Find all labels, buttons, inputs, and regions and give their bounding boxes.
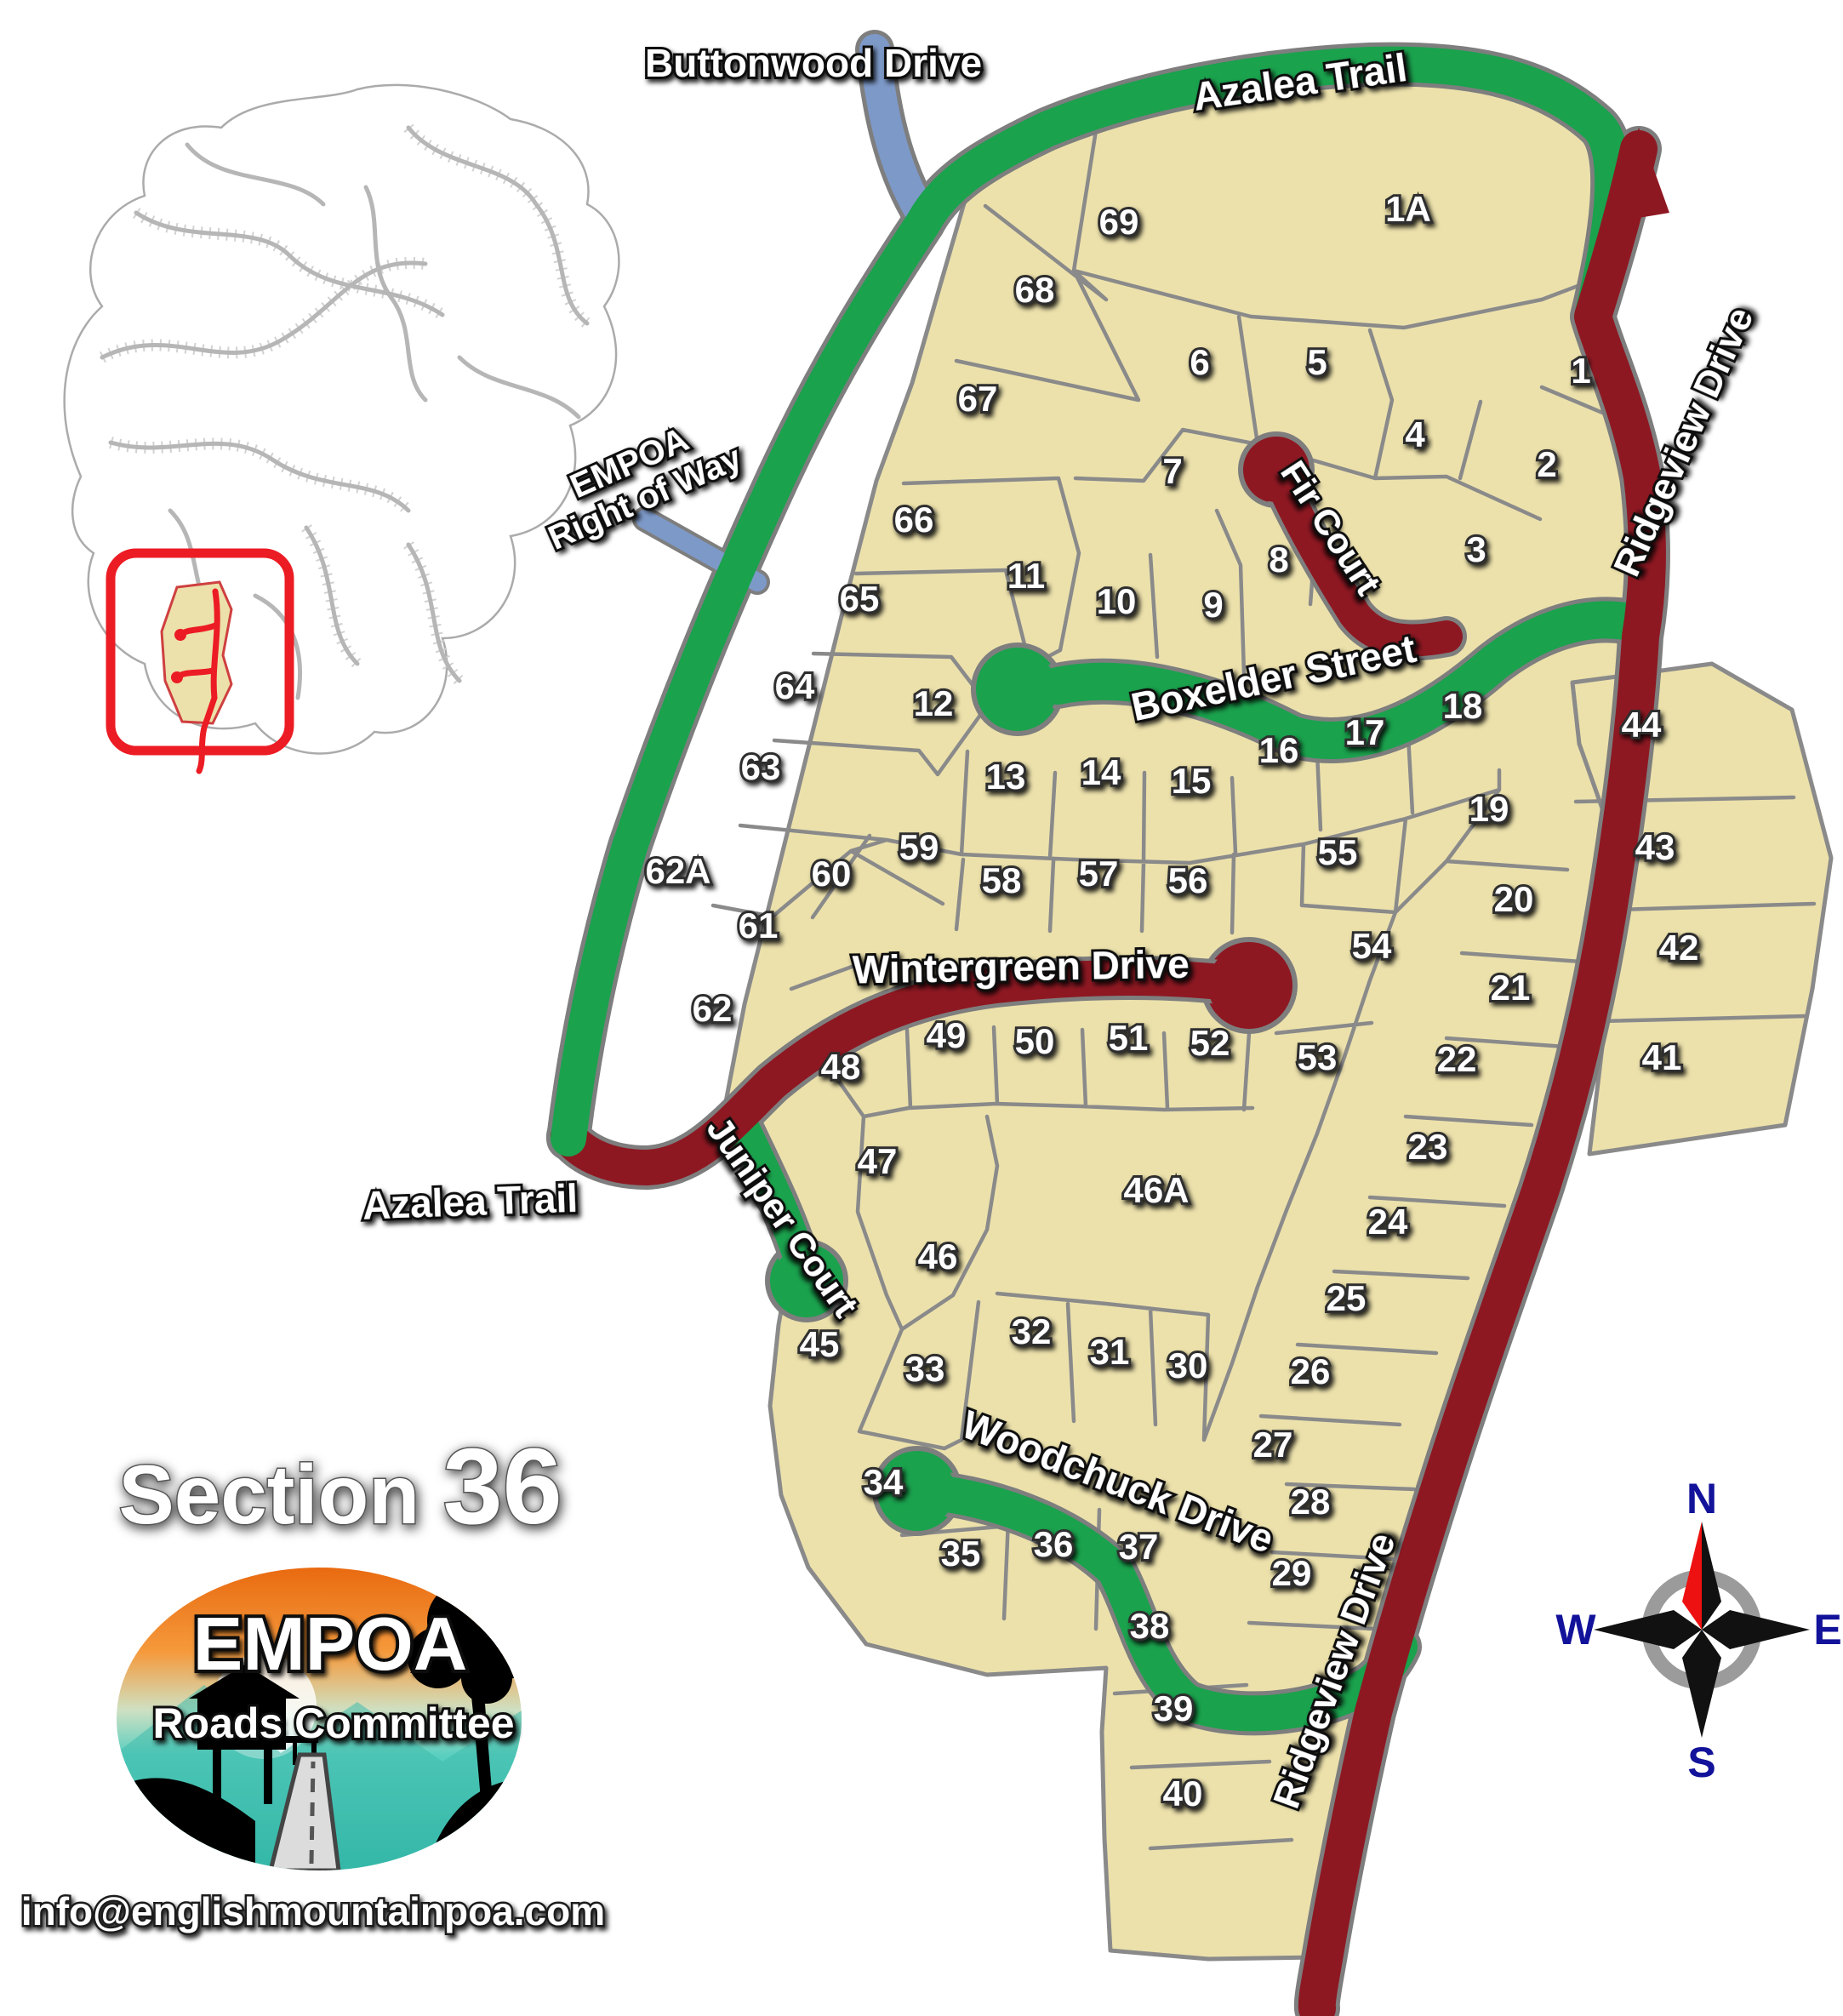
lot-65: 65 [840, 579, 880, 619]
lot-40: 40 [1163, 1773, 1203, 1813]
lot-56: 56 [1168, 860, 1208, 900]
lot-27: 27 [1253, 1425, 1293, 1465]
lot-34: 34 [864, 1462, 904, 1502]
lot-20: 20 [1494, 879, 1534, 919]
lot-55: 55 [1318, 832, 1358, 872]
lot-17: 17 [1345, 712, 1385, 752]
lot-66: 66 [894, 500, 934, 540]
lot-13: 13 [986, 757, 1026, 797]
compass-n-label: N [1686, 1475, 1717, 1522]
lot-46A: 46A [1123, 1170, 1189, 1210]
lot-45: 45 [800, 1324, 840, 1364]
lot-28: 28 [1291, 1482, 1331, 1522]
compass-e-label: E [1813, 1606, 1841, 1653]
inset-overview-map [65, 85, 619, 771]
lot-37: 37 [1119, 1527, 1159, 1567]
lot-36: 36 [1034, 1524, 1074, 1564]
lot-59: 59 [899, 827, 939, 867]
lot-21: 21 [1491, 968, 1531, 1008]
lot-7: 7 [1162, 451, 1182, 491]
lot-46: 46 [918, 1236, 958, 1276]
inset-culdesac-dot [171, 671, 183, 683]
lot-9: 9 [1203, 585, 1223, 625]
inset-culdesac-dot [174, 629, 186, 641]
section-36-map: Buttonwood DriveAzalea TrailEMPOARight o… [0, 0, 1843, 2016]
street-label-wintergreen-drive: Wintergreen Drive [852, 942, 1190, 992]
contact-email: info@englishmountainpoa.com [21, 1889, 605, 1933]
lot-18: 18 [1443, 686, 1483, 726]
lot-35: 35 [941, 1533, 981, 1573]
lot-39: 39 [1154, 1688, 1194, 1728]
compass-s-label: S [1687, 1739, 1715, 1786]
lot-23: 23 [1408, 1127, 1448, 1167]
lot-61: 61 [739, 905, 779, 945]
lot-6: 6 [1190, 342, 1209, 382]
lot-48: 48 [821, 1047, 861, 1087]
lot-57: 57 [1079, 854, 1119, 894]
lot-31: 31 [1090, 1332, 1130, 1372]
lot-29: 29 [1272, 1553, 1312, 1593]
lot-51: 51 [1109, 1018, 1149, 1058]
lot-8: 8 [1269, 540, 1288, 580]
lot-16: 16 [1259, 730, 1299, 770]
logo-org-text: EMPOA [193, 1602, 468, 1686]
lot-22: 22 [1437, 1039, 1477, 1079]
lot-42: 42 [1659, 928, 1699, 968]
inset-boundary [65, 85, 619, 754]
lot-1: 1 [1571, 351, 1590, 391]
lot-10: 10 [1097, 581, 1137, 621]
lot-26: 26 [1291, 1351, 1331, 1391]
lot-50: 50 [1015, 1021, 1055, 1061]
empoa-roads-committee-logo: EMPOA Roads Committee [117, 1568, 539, 1870]
logo-subtitle-text: Roads Committee [152, 1699, 514, 1747]
lot-3: 3 [1466, 529, 1486, 569]
lot-43: 43 [1635, 827, 1675, 867]
lot-47: 47 [858, 1141, 898, 1181]
lot-5: 5 [1307, 342, 1327, 382]
lot-4: 4 [1405, 414, 1425, 454]
lot-38: 38 [1130, 1606, 1170, 1646]
lot-32: 32 [1012, 1311, 1052, 1351]
compass-rose-icon: N E S W [1555, 1475, 1841, 1786]
lot-64: 64 [775, 666, 815, 706]
main-map: Buttonwood DriveAzalea TrailEMPOARight o… [362, 41, 1831, 2008]
lot-25: 25 [1327, 1278, 1367, 1318]
lot-12: 12 [914, 683, 954, 723]
lot-41: 41 [1642, 1037, 1682, 1077]
lot-11: 11 [1007, 556, 1045, 596]
street-label-empoa-right-of-way: EMPOARight of Way [528, 403, 748, 557]
lot-19: 19 [1469, 789, 1509, 829]
street-label-buttonwood-drive: Buttonwood Drive [645, 41, 982, 85]
lot-52: 52 [1190, 1023, 1230, 1063]
lot-44: 44 [1622, 705, 1662, 745]
lot-33: 33 [905, 1349, 945, 1389]
lot-62A: 62A [645, 851, 710, 891]
inset-section-area [162, 582, 231, 723]
lot-15: 15 [1172, 761, 1212, 801]
lot-58: 58 [982, 860, 1022, 900]
page-title: Section 36 [118, 1426, 562, 1546]
lot-60: 60 [812, 854, 852, 894]
lot-24: 24 [1368, 1202, 1408, 1242]
lot-1A: 1A [1385, 189, 1431, 229]
lot-62: 62 [693, 989, 733, 1029]
lot-49: 49 [927, 1015, 967, 1055]
lot-54: 54 [1352, 926, 1392, 966]
lot-68: 68 [1015, 270, 1055, 310]
lot-53: 53 [1298, 1037, 1338, 1077]
lot-30: 30 [1168, 1345, 1208, 1385]
lot-2: 2 [1537, 444, 1556, 484]
lot-69: 69 [1099, 202, 1139, 242]
compass-w-label: W [1555, 1606, 1596, 1653]
lot-14: 14 [1081, 752, 1121, 792]
street-label-azalea-trail: Azalea Trail [362, 1176, 579, 1228]
lot-67: 67 [958, 379, 998, 419]
lot-63: 63 [741, 747, 781, 787]
